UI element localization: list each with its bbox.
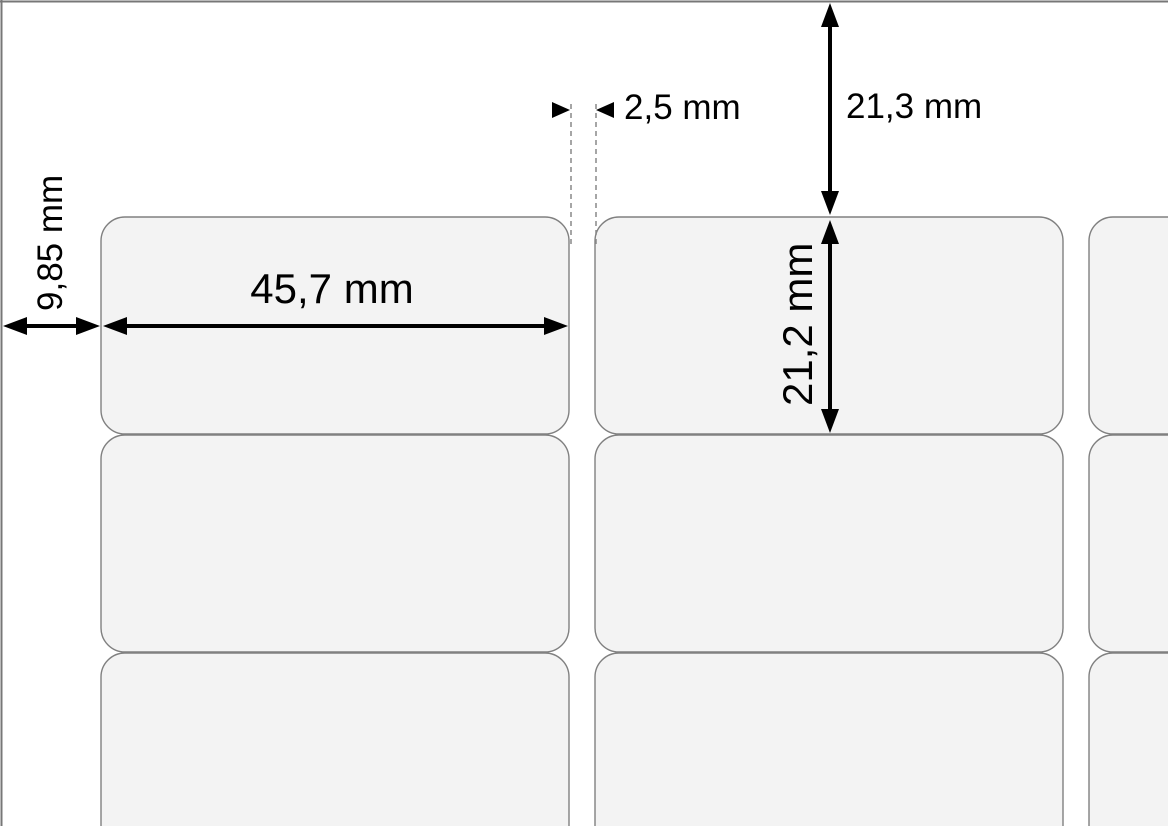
top-margin-value: 21,3 mm <box>846 87 982 126</box>
label-cell-r1c3 <box>1089 217 1168 434</box>
dimension-diagram-svg: 9,85 mm 45,7 mm 2,5 mm 21,3 mm <box>0 0 1168 826</box>
label-cell-r3c2 <box>595 653 1063 826</box>
label-cell-r2c3 <box>1089 435 1168 652</box>
label-sheet-diagram: 9,85 mm 45,7 mm 2,5 mm 21,3 mm <box>0 0 1168 826</box>
dim-label-height: 21,2 mm <box>774 220 839 433</box>
left-margin-value: 9,85 mm <box>31 175 70 311</box>
dim-left-margin: 9,85 mm <box>3 175 100 335</box>
left-margin-arrowhead-left <box>3 317 27 335</box>
dim-top-margin: 21,3 mm <box>821 3 982 215</box>
label-width-value: 45,7 mm <box>250 265 413 312</box>
top-margin-arrowhead-bottom <box>821 191 839 215</box>
label-cell-r2c2 <box>595 435 1063 652</box>
top-margin-arrowhead-top <box>821 3 839 27</box>
gap-arrowhead-right <box>596 102 614 118</box>
column-gap-value: 2,5 mm <box>624 88 741 127</box>
label-cell-r3c1 <box>101 653 569 826</box>
label-cell-r2c1 <box>101 435 569 652</box>
label-height-value: 21,2 mm <box>774 243 821 406</box>
left-margin-arrowhead-right <box>76 317 100 335</box>
label-cell-r3c3 <box>1089 653 1168 826</box>
gap-arrowhead-left <box>552 102 570 118</box>
